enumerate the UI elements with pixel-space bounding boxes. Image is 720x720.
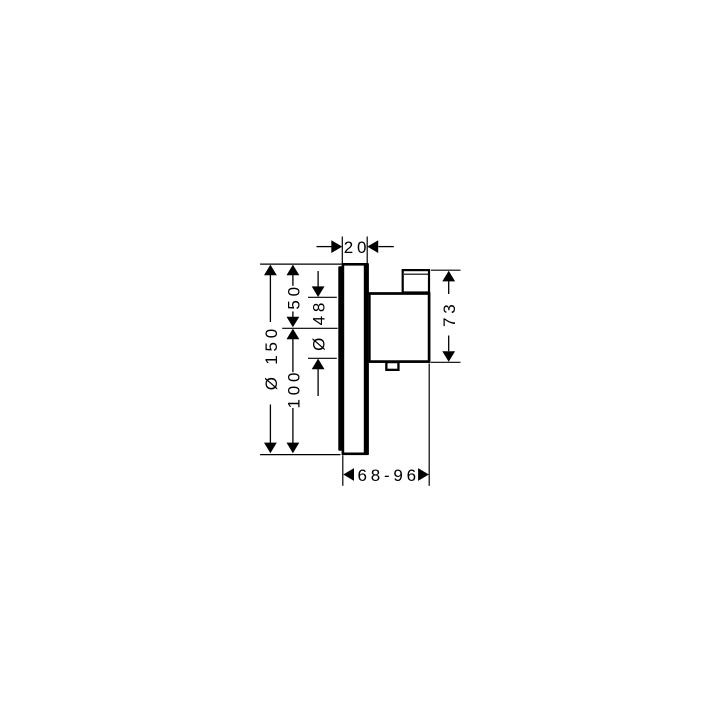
svg-text:68-96: 68-96 [357,466,419,485]
svg-text:50: 50 [284,283,303,310]
svg-text:100: 100 [284,369,303,409]
svg-text:Ø 48: Ø 48 [310,299,329,351]
svg-text:20: 20 [344,238,371,257]
svg-text:Ø 150: Ø 150 [262,325,281,390]
svg-text:73: 73 [440,300,459,327]
